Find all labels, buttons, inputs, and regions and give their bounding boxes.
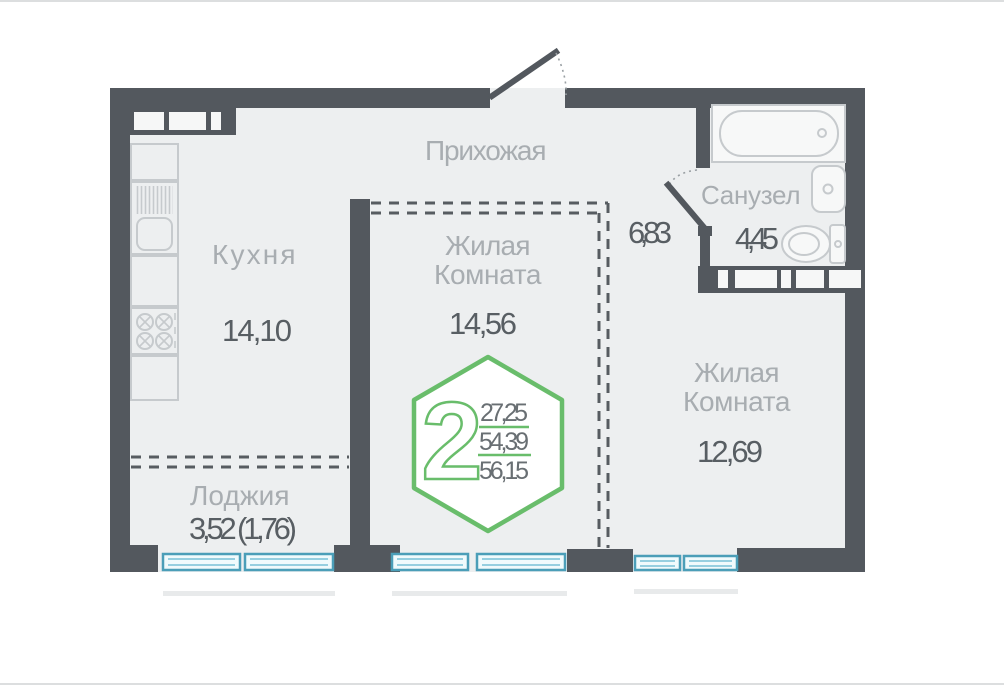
room-area-living-right: 12,69 [697,434,763,469]
room-area-bathroom: 4,45 [735,221,779,256]
room-area-loggia: 3,52 (1,76) [189,511,297,546]
room-label-hallway: Прихожая [425,135,547,166]
window [635,556,680,570]
window [477,554,565,570]
floor-plan: Прихожая 6,83 Кухня 14,10 Жилая Комната … [0,0,1004,685]
window-shadow [634,589,738,594]
wall-segment [110,88,490,108]
window [245,554,333,570]
badge-area-living: 27,25 [480,399,528,427]
windows [163,554,738,596]
wall-segment [737,548,865,572]
window [392,554,468,570]
room-label-bathroom: Санузел [701,180,801,210]
room-label-kitchen: Кухня [212,239,296,270]
room-area-hallway: 6,83 [628,215,672,250]
vent-block-bathroom [698,266,865,293]
badge-rooms-count: 2 [421,380,482,503]
badge-area-total: 56,15 [479,457,529,485]
room-area-living-center: 14,56 [449,306,517,341]
room-label-living-right-1: Жилая [694,357,780,388]
window-shadow [392,591,567,596]
floor-plan-drawing: Прихожая 6,83 Кухня 14,10 Жилая Комната … [0,0,1004,685]
room-label-living-center-1: Жилая [445,230,531,261]
wall-segment [350,199,370,545]
wall-segment [845,88,865,572]
badge-area-no-loggia: 54,39 [479,428,529,456]
room-label-living-center-2: Комната [434,259,542,290]
toilet [782,225,845,263]
wall-segment [567,549,633,572]
window [163,554,240,570]
wall-segment [696,108,710,168]
room-label-loggia: Лоджия [190,480,290,511]
bathroom-sink [812,166,845,212]
wall-segment [334,545,400,572]
bathtub [712,105,845,162]
vent-block-top-left [130,108,236,135]
room-label-living-right-2: Комната [683,386,791,417]
wall-segment [700,232,710,268]
room-area-kitchen: 14,10 [222,313,292,348]
window [684,556,737,570]
window-shadow [163,591,335,596]
wall-segment [110,545,158,572]
wall-segment [110,88,130,572]
